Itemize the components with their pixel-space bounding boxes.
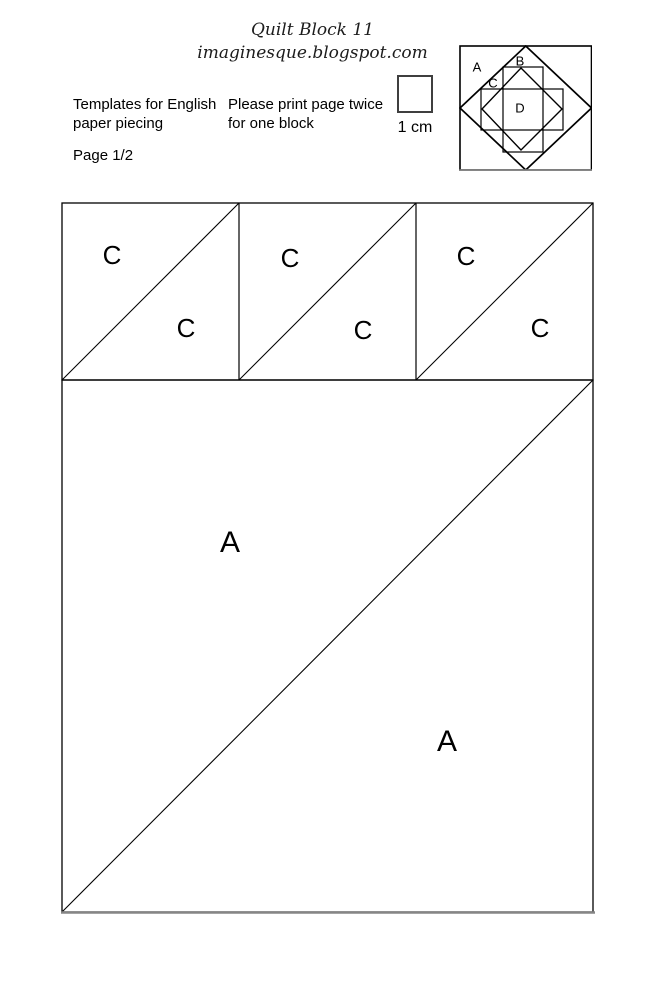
c2-lower-label: C xyxy=(354,317,373,343)
diagram-label-a: A xyxy=(473,60,482,75)
left-note-line2: paper piecing xyxy=(73,114,216,133)
left-note: Templates for English paper piecing xyxy=(73,95,216,133)
c3-upper-label: C xyxy=(457,243,476,269)
c-square-3-diagonal xyxy=(416,203,593,380)
a-lower-label: A xyxy=(437,727,457,757)
scale-reference-square xyxy=(397,75,433,113)
quilt-block-diagram: A B C D xyxy=(459,45,592,171)
c3-lower-label: C xyxy=(531,315,550,341)
print-note-line1: Please print page twice xyxy=(228,95,383,114)
print-note-line2: for one block xyxy=(228,114,383,133)
c-square-1-diagonal xyxy=(62,203,239,380)
template-page: Quilt Block 11 imaginesque.blogspot.com … xyxy=(0,0,661,1005)
c1-lower-label: C xyxy=(177,315,196,341)
scale-label: 1 cm xyxy=(392,119,438,137)
left-note-line1: Templates for English xyxy=(73,95,216,114)
page-number-label: Page 1/2 xyxy=(73,146,133,165)
c2-upper-label: C xyxy=(281,245,300,271)
diagram-label-b: B xyxy=(516,54,525,69)
a-square-diagonal xyxy=(62,380,593,912)
diagram-label-d: D xyxy=(515,101,524,116)
c-square-2-diagonal xyxy=(239,203,416,380)
print-note: Please print page twice for one block xyxy=(228,95,383,133)
template-shapes xyxy=(61,202,595,914)
diagram-label-c: C xyxy=(488,76,497,91)
a-upper-label: A xyxy=(220,528,240,558)
page-title: Quilt Block 11 xyxy=(0,19,625,42)
c1-upper-label: C xyxy=(103,242,122,268)
